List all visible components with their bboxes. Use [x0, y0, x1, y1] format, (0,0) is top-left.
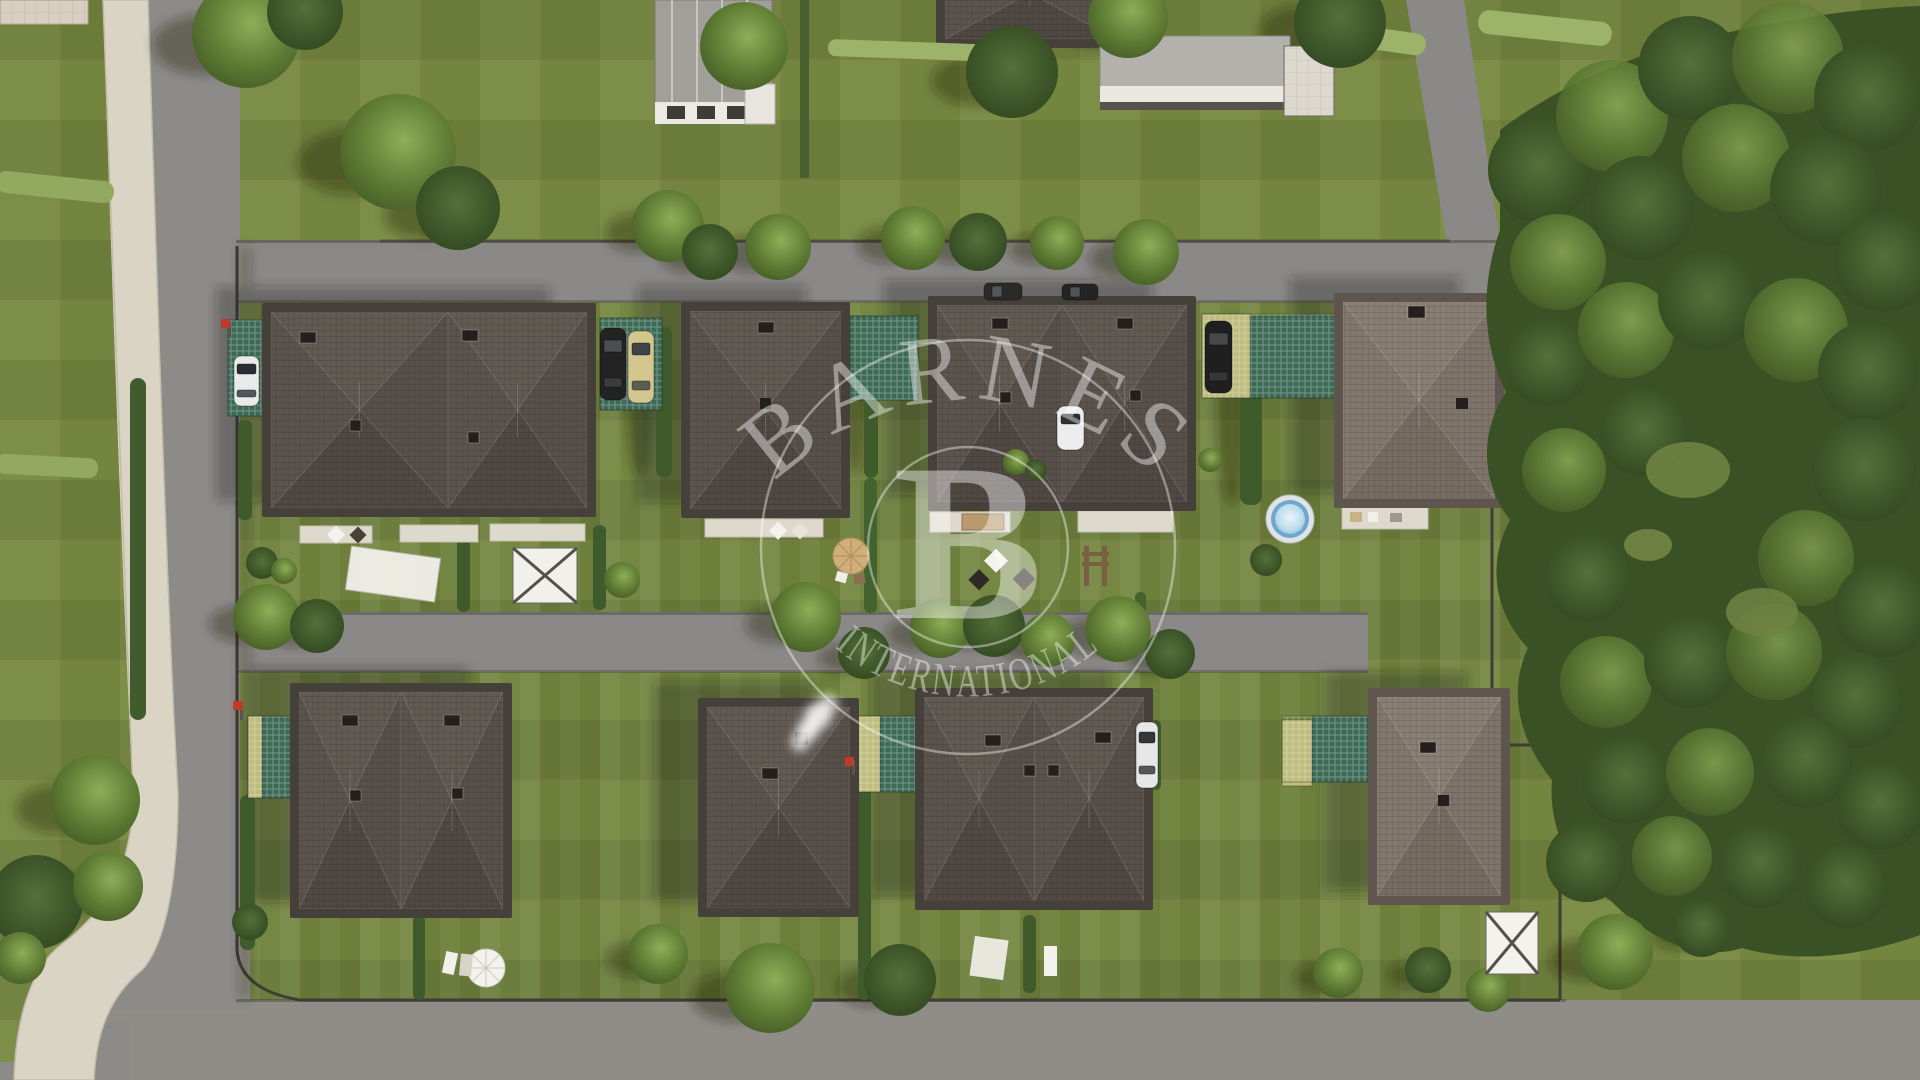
lounger	[459, 954, 473, 977]
roof-vent	[350, 790, 361, 801]
tree	[1145, 629, 1195, 679]
roof-window	[462, 330, 478, 341]
picnic-blanket	[969, 936, 1008, 980]
tree	[1577, 914, 1653, 990]
tree	[1198, 448, 1222, 472]
tree	[271, 558, 297, 584]
house-bottom-2	[698, 698, 859, 917]
house-bottom-1	[290, 683, 512, 918]
tree	[745, 214, 811, 280]
roof-vent	[1024, 765, 1035, 776]
tree	[604, 562, 640, 598]
roof-window	[1408, 306, 1425, 318]
tree	[881, 206, 945, 270]
tree	[771, 582, 841, 652]
house-top-4	[1334, 293, 1504, 508]
roof-window	[762, 768, 778, 779]
aerial-render: BARNES B INTERNATIONAL	[0, 0, 1920, 1080]
pergola-x-2	[1486, 912, 1538, 974]
tree	[966, 26, 1058, 118]
car-white-top-left	[234, 356, 259, 406]
roof-window	[1095, 732, 1111, 743]
car-dark-street-2	[1062, 284, 1098, 300]
tree	[725, 943, 815, 1033]
watermark-monogram: B	[893, 417, 1043, 667]
tree	[233, 584, 299, 650]
house-bottom-4	[1368, 688, 1510, 905]
tree	[73, 851, 143, 921]
lounger	[1044, 946, 1057, 976]
street-bottom	[0, 1000, 1920, 1080]
roof-vent	[1438, 795, 1449, 806]
tree	[1466, 968, 1510, 1012]
window	[727, 106, 745, 119]
car-white-bottom	[1136, 722, 1158, 788]
pergola-x	[513, 548, 577, 603]
window	[697, 106, 715, 119]
tree	[290, 599, 344, 653]
tree	[864, 944, 936, 1016]
tree	[1673, 899, 1731, 957]
pool	[1266, 495, 1314, 543]
roof-window	[985, 735, 1001, 746]
car-yellow	[628, 331, 654, 403]
roof-vent	[1048, 765, 1059, 776]
tree	[50, 755, 140, 845]
tree	[1313, 948, 1363, 998]
roof-vent	[1456, 398, 1468, 409]
roof-vent	[468, 432, 479, 443]
tree	[232, 904, 268, 940]
roof-vent	[350, 420, 361, 431]
car-black-pair	[600, 328, 626, 400]
tree	[682, 224, 738, 280]
tree	[1030, 216, 1084, 270]
roof-window	[1117, 318, 1133, 329]
tree	[628, 924, 688, 984]
patio-bits	[1350, 512, 1402, 522]
tree	[416, 166, 500, 250]
window	[667, 106, 685, 119]
tree	[1250, 544, 1282, 576]
tree	[949, 213, 1007, 271]
building-top-left-terrace	[0, 0, 88, 24]
tree	[1113, 219, 1179, 285]
roof-window	[342, 715, 358, 726]
roof-vent	[452, 788, 463, 799]
roof-window	[444, 715, 460, 726]
tree	[1405, 947, 1451, 993]
car-dark-street-1	[984, 283, 1022, 300]
roof-window	[1420, 742, 1436, 753]
roof-window	[758, 322, 774, 333]
car-black-gap	[1205, 321, 1232, 393]
roof-window	[300, 332, 316, 343]
house-top-1	[262, 303, 596, 517]
house-bottom-3	[915, 688, 1153, 910]
tree	[700, 2, 788, 90]
